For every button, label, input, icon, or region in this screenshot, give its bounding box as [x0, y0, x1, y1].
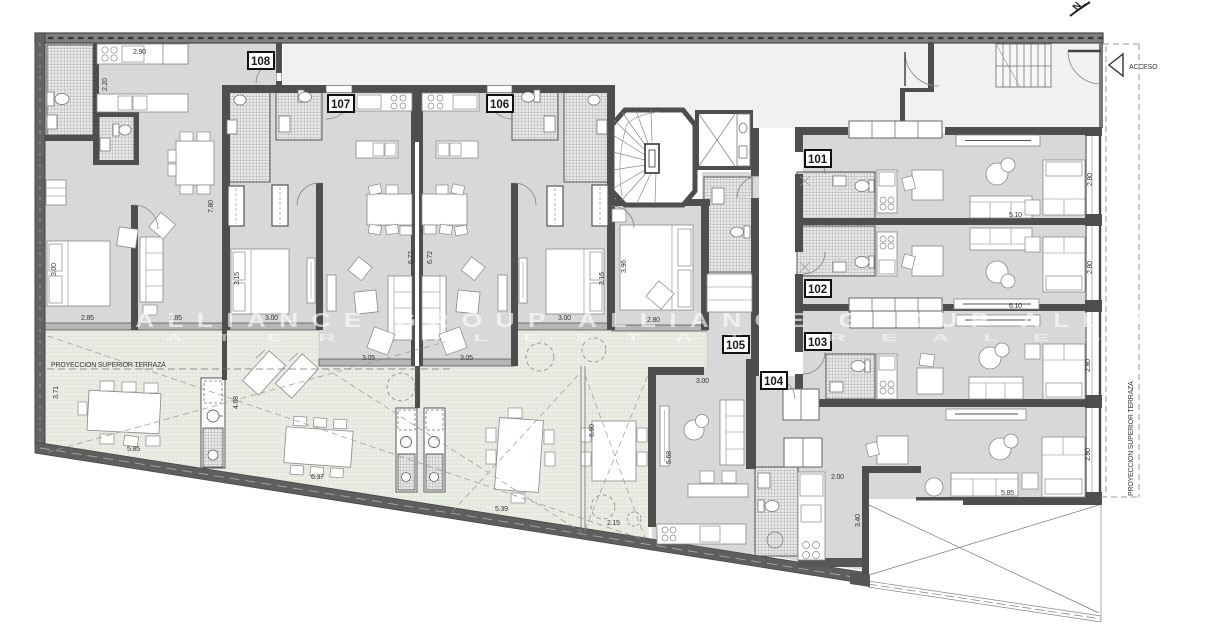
svg-text:2.85: 2.85 [81, 315, 94, 322]
svg-text:101: 101 [808, 154, 828, 166]
svg-text:2.80: 2.80 [1085, 359, 1092, 372]
svg-text:2.90: 2.90 [133, 49, 146, 56]
svg-text:ACCESO: ACCESO [1129, 64, 1158, 71]
svg-text:5.68: 5.68 [666, 451, 673, 464]
svg-text:2.00: 2.00 [831, 474, 844, 481]
svg-text:5.10: 5.10 [1009, 212, 1022, 219]
svg-text:3.71: 3.71 [53, 386, 60, 399]
svg-text:108: 108 [251, 56, 271, 68]
svg-text:5.85: 5.85 [1001, 490, 1014, 497]
svg-text:2.80: 2.80 [1085, 448, 1092, 461]
svg-text:106: 106 [490, 99, 509, 111]
svg-text:3.05: 3.05 [362, 355, 375, 362]
svg-text:2.80: 2.80 [1087, 173, 1094, 186]
svg-text:3.40: 3.40 [855, 514, 862, 527]
svg-text:6.60: 6.60 [589, 424, 596, 437]
svg-text:107: 107 [331, 99, 350, 111]
svg-text:5.39: 5.39 [495, 506, 508, 513]
svg-text:102: 102 [808, 284, 827, 296]
svg-text:3.15: 3.15 [599, 272, 606, 285]
svg-text:3.15: 3.15 [234, 272, 241, 285]
svg-text:6.72: 6.72 [408, 251, 415, 264]
svg-text:3.00: 3.00 [696, 378, 709, 385]
svg-text:4.68: 4.68 [233, 396, 240, 409]
svg-text:6.72: 6.72 [427, 251, 434, 264]
svg-text:2.20: 2.20 [102, 78, 109, 91]
svg-text:PROYECCION SUPERIOR TERRAZA: PROYECCION SUPERIOR TERRAZA [1128, 381, 1135, 496]
svg-text:ALLIANCE GROUP ALLIANCE GROUP: ALLIANCE GROUP ALLIANCE GROUP ALLIA [135, 310, 1165, 332]
svg-text:3.05: 3.05 [460, 355, 473, 362]
svg-text:3.96: 3.96 [621, 260, 628, 273]
svg-text:104: 104 [764, 376, 784, 388]
svg-text:A T E R E A L E S T A T: A T E R E A L E S T A T E R E A L E S [165, 333, 1115, 344]
svg-text:7.80: 7.80 [208, 200, 215, 213]
svg-text:2.80: 2.80 [1087, 261, 1094, 274]
svg-text:PROYECCION SUPERIOR TERRAZA: PROYECCION SUPERIOR TERRAZA [51, 362, 166, 369]
svg-text:6.10: 6.10 [1009, 303, 1022, 310]
svg-text:2.15: 2.15 [607, 520, 620, 527]
svg-text:5.85: 5.85 [127, 446, 140, 453]
svg-text:6.37: 6.37 [311, 474, 324, 481]
svg-text:3.00: 3.00 [51, 263, 58, 276]
